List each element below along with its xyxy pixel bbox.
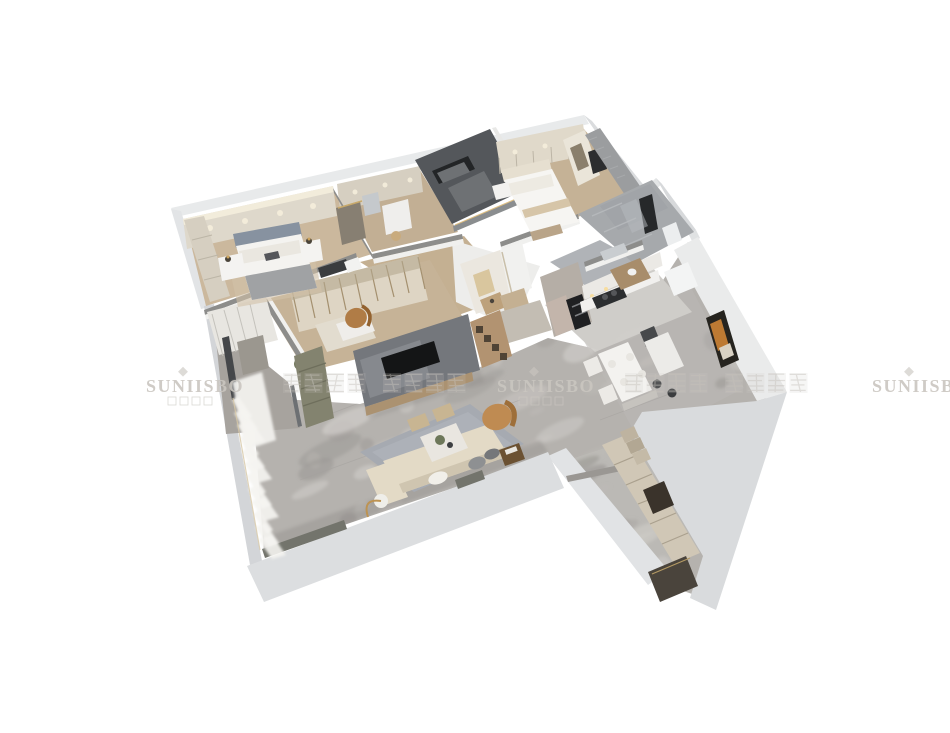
svg-text:SUNIISBO: SUNIISBO [146,376,244,396]
svg-text:SUNIISBO: SUNIISBO [872,376,950,396]
svg-text:SUNIISBO: SUNIISBO [497,376,595,396]
